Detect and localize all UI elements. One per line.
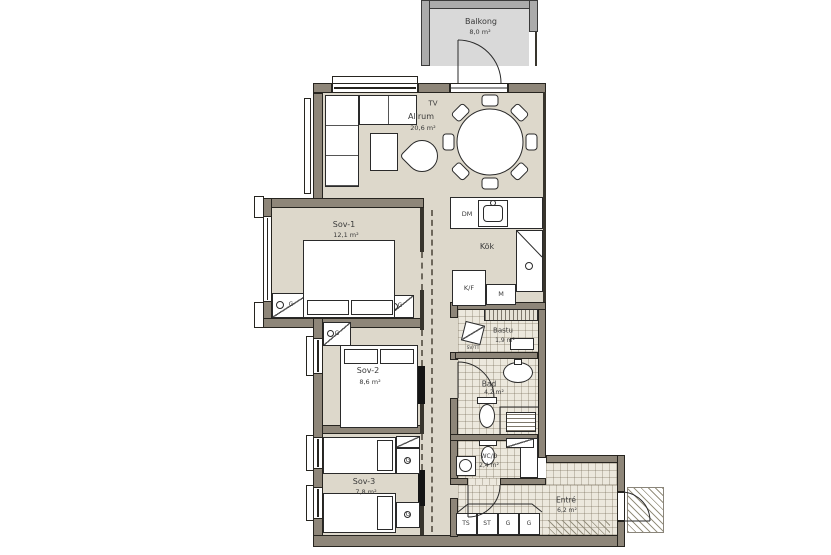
fridge-freezer-label: K/F — [464, 285, 474, 292]
room-label-allrum: Allrum — [408, 113, 434, 121]
room-area-wcd: 2,4 m² — [479, 463, 499, 469]
room-label-sov3: Sov-3 — [353, 478, 375, 486]
tv-label: TV — [428, 101, 437, 108]
wardrobe-label: G — [398, 303, 403, 309]
room-label-bad: Bad — [482, 380, 497, 388]
shower-screen — [500, 407, 538, 434]
dishwasher-label: DM — [462, 211, 473, 218]
room-area-balkong: 8,0 m² — [469, 29, 490, 36]
counter-knob — [526, 263, 533, 270]
coat-rail — [458, 504, 542, 512]
room-label-balkong: Balkong — [465, 18, 497, 26]
room-label-wcd: WC/D — [481, 454, 498, 460]
room-area-allrum: 20,6 m² — [410, 125, 435, 132]
wc-door-swing — [468, 485, 500, 517]
room-label-bastu: Bastu — [493, 328, 513, 335]
microwave-label: M — [498, 291, 504, 298]
room-label-sov2: Sov-2 — [357, 367, 379, 375]
room-label-entre: Entré — [556, 496, 576, 504]
cabinet-label-st: ST — [483, 521, 490, 527]
wardrobe-label: G — [335, 331, 340, 337]
floor-plan: Balkong 8,0 m² TV Allrum 20,6 m² Sov-1 1… — [0, 0, 831, 555]
dining-table — [443, 95, 537, 189]
wardrobe-label: G — [406, 512, 411, 518]
room-area-entre: 6,2 m² — [557, 508, 577, 514]
balcony-door-swing — [458, 40, 501, 83]
room-label-sov1: Sov-1 — [333, 221, 355, 229]
cabinet-label-g: G — [527, 521, 532, 527]
room-area-sov2: 8,6 m² — [359, 379, 380, 386]
room-area-bad: 4,2 m² — [484, 390, 504, 396]
room-area-bastu: 1,9 m² — [495, 338, 515, 344]
room-area-sov3: 7,8 m² — [355, 489, 376, 496]
sink-faucet — [491, 201, 496, 206]
room-area-sov1: 12,1 m² — [333, 232, 358, 239]
line-art-overlay — [0, 0, 831, 555]
wardrobe-label: G — [406, 458, 411, 464]
room-label-kok: Kök — [480, 243, 494, 251]
entrance-door-swing — [621, 492, 650, 521]
cabinet-label-g: G — [506, 521, 511, 527]
cabinet-label-ts: TS — [462, 521, 469, 527]
washer-dryer-label: SV/TT — [467, 347, 480, 352]
counter-corner-line — [517, 231, 542, 257]
wardrobe-label: G — [289, 302, 294, 308]
